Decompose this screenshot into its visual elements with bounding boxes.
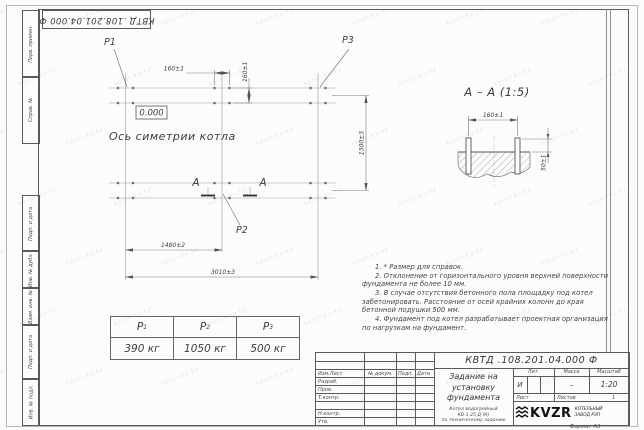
kvzr-logo-icon bbox=[515, 406, 530, 420]
tb-sheets-label: Листов bbox=[557, 395, 576, 401]
p-subscript: 2 bbox=[206, 324, 210, 331]
tb-scale-value: 1:20 bbox=[589, 376, 629, 393]
load-value-p3: 500 кг bbox=[237, 338, 299, 359]
dim-left-span: 1480±2 bbox=[161, 242, 185, 249]
load-label-p1: Р1 bbox=[104, 37, 116, 48]
load-table-value-row: 390 кг 1050 кг 500 кг bbox=[111, 338, 299, 359]
dim-total-span: 3010±3 bbox=[211, 269, 235, 276]
tb-title-line: установку bbox=[452, 383, 495, 394]
tb-lit-header: Лит. bbox=[513, 369, 554, 375]
load-table-header-p1: Р1 bbox=[111, 317, 174, 338]
boiler-axis-label: Ось симетрии котла bbox=[109, 130, 236, 143]
note-1: 1. * Размер для справок. bbox=[362, 263, 614, 272]
tb-row-prov: Пров. bbox=[318, 387, 333, 393]
load-label-p3: Р3 bbox=[342, 35, 354, 46]
tb-mass-value: – bbox=[554, 376, 589, 393]
tb-row-razrab: Разраб. bbox=[318, 379, 338, 385]
anchor-bolt-right bbox=[515, 138, 520, 174]
p-subscript: 3 bbox=[269, 324, 273, 331]
tb-company: KVZR КОТЕЛЬНЫЙ ЗАВОД РЭП bbox=[515, 402, 627, 424]
tb-row-utv: Утв. bbox=[318, 419, 329, 425]
dim-bolt-spacing-y: 160±1 bbox=[242, 62, 249, 82]
note-4: 4. Фундамент под котел разрабатывает про… bbox=[362, 315, 614, 332]
load-table: Р1 Р2 Р3 390 кг 1050 кг 500 кг bbox=[110, 316, 300, 360]
load-table-header-p3: Р3 bbox=[237, 317, 299, 338]
section-title: А – А (1:5) bbox=[463, 85, 529, 99]
tb-company-logo-text: KVZR bbox=[530, 406, 572, 421]
dim-width: 1300±3 bbox=[359, 131, 366, 155]
load-value-p2: 1050 кг bbox=[174, 338, 237, 359]
tb-col-izm-list: Изм.Лист bbox=[318, 371, 342, 377]
tb-sheets-value: 1 bbox=[612, 395, 615, 401]
cut-letter-left: А bbox=[191, 177, 199, 189]
load-table-header-p2: Р2 bbox=[174, 317, 237, 338]
drawing-sheet: kotel-kv.kzkotel-kv.kzkotel-kv.kzkotel-k… bbox=[0, 0, 644, 430]
tb-lit-value: И bbox=[513, 376, 527, 393]
tb-col-ndokum: № докум. bbox=[368, 371, 393, 377]
elevation-value: 0.000 bbox=[139, 109, 163, 119]
note-3: 3. В случае отсутствия бетонного пола пл… bbox=[362, 289, 614, 315]
load-value-p1: 390 кг bbox=[111, 338, 174, 359]
title-block: Изм.Лист № докум. Подп. Дата Разраб. Про… bbox=[315, 352, 630, 426]
p-subscript: 1 bbox=[143, 324, 147, 331]
tb-subtitle-line: по техническому заданию bbox=[442, 418, 506, 424]
tb-col-data: Дата bbox=[417, 371, 430, 377]
section-dim-protrusion: 50±1 bbox=[541, 155, 548, 171]
load-label-p2: Р2 bbox=[236, 225, 248, 236]
tb-mass-header: Масса bbox=[554, 369, 589, 375]
anchor-bolt-left bbox=[466, 138, 471, 174]
plan-view: 160±1 160±1 1300±3 1480±2 3010±3 А А bbox=[104, 35, 369, 280]
tb-designation: КВТД .108.201.04.000 Ф bbox=[434, 353, 629, 368]
tb-col-podp: Подп. bbox=[398, 371, 413, 377]
tb-row-tkontr: Т.контр. bbox=[318, 395, 340, 401]
dim-bolt-spacing-x: 160±1 bbox=[164, 66, 184, 73]
tb-title-line: Задание на bbox=[449, 372, 498, 383]
tb-sheet-label: Лист bbox=[516, 395, 529, 401]
section-view: А – А (1:5) 160±1 50±1 bbox=[458, 85, 552, 186]
format-label: Формат А3 bbox=[540, 424, 630, 430]
load-table-header-row: Р1 Р2 Р3 bbox=[111, 317, 299, 338]
cut-letter-right: А bbox=[258, 177, 266, 189]
notes-block: 1. * Размер для справок. 2. Отклонение о… bbox=[362, 263, 614, 333]
tb-row-nkontr: Н.контр. bbox=[318, 411, 340, 417]
tb-company-name-line2: ЗАВОД РЭП bbox=[575, 413, 603, 419]
tb-doc-subtitle: Котел водогрейный КВ-1,25 Д (К) по техни… bbox=[434, 406, 513, 425]
tb-title-line: фундамента bbox=[447, 393, 500, 404]
note-2: 2. Отклонение от горизонтального уровня … bbox=[362, 272, 614, 289]
tb-scale-header: Масштаб bbox=[589, 369, 629, 375]
tb-company-name: КОТЕЛЬНЫЙ ЗАВОД РЭП bbox=[575, 407, 603, 418]
section-dim-spacing: 160±1 bbox=[483, 112, 503, 119]
tb-doc-title: Задание на установку фундамента bbox=[434, 369, 513, 407]
